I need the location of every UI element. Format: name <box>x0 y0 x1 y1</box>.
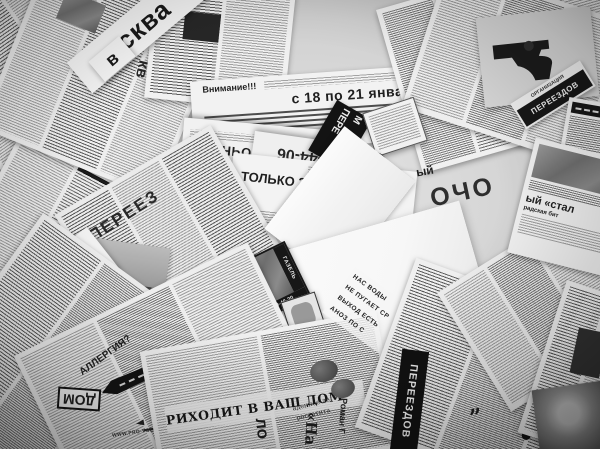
fine-print <box>369 103 422 151</box>
moskva-v-text: в <box>101 47 123 70</box>
portrait-photo <box>531 380 600 449</box>
photo-block <box>182 11 221 43</box>
dom-text: ДОМ <box>62 391 96 409</box>
lo-fragment: ло <box>251 417 273 440</box>
newspaper-collage: осква в кв Внимание!!! с 18 по 21 января… <box>0 0 600 449</box>
dom-fragment: ДОМ <box>57 387 101 412</box>
na-fragment: «На <box>301 412 321 446</box>
white-text-placeholder <box>576 107 600 114</box>
stal-article: ый «стал радская бит <box>507 138 600 277</box>
yi-fragment: ый <box>415 163 435 180</box>
pereezdov-vertical-text: ПЕРЕЕЗДОВ <box>399 363 420 438</box>
ocho-fragment: ОЧО <box>428 172 498 214</box>
